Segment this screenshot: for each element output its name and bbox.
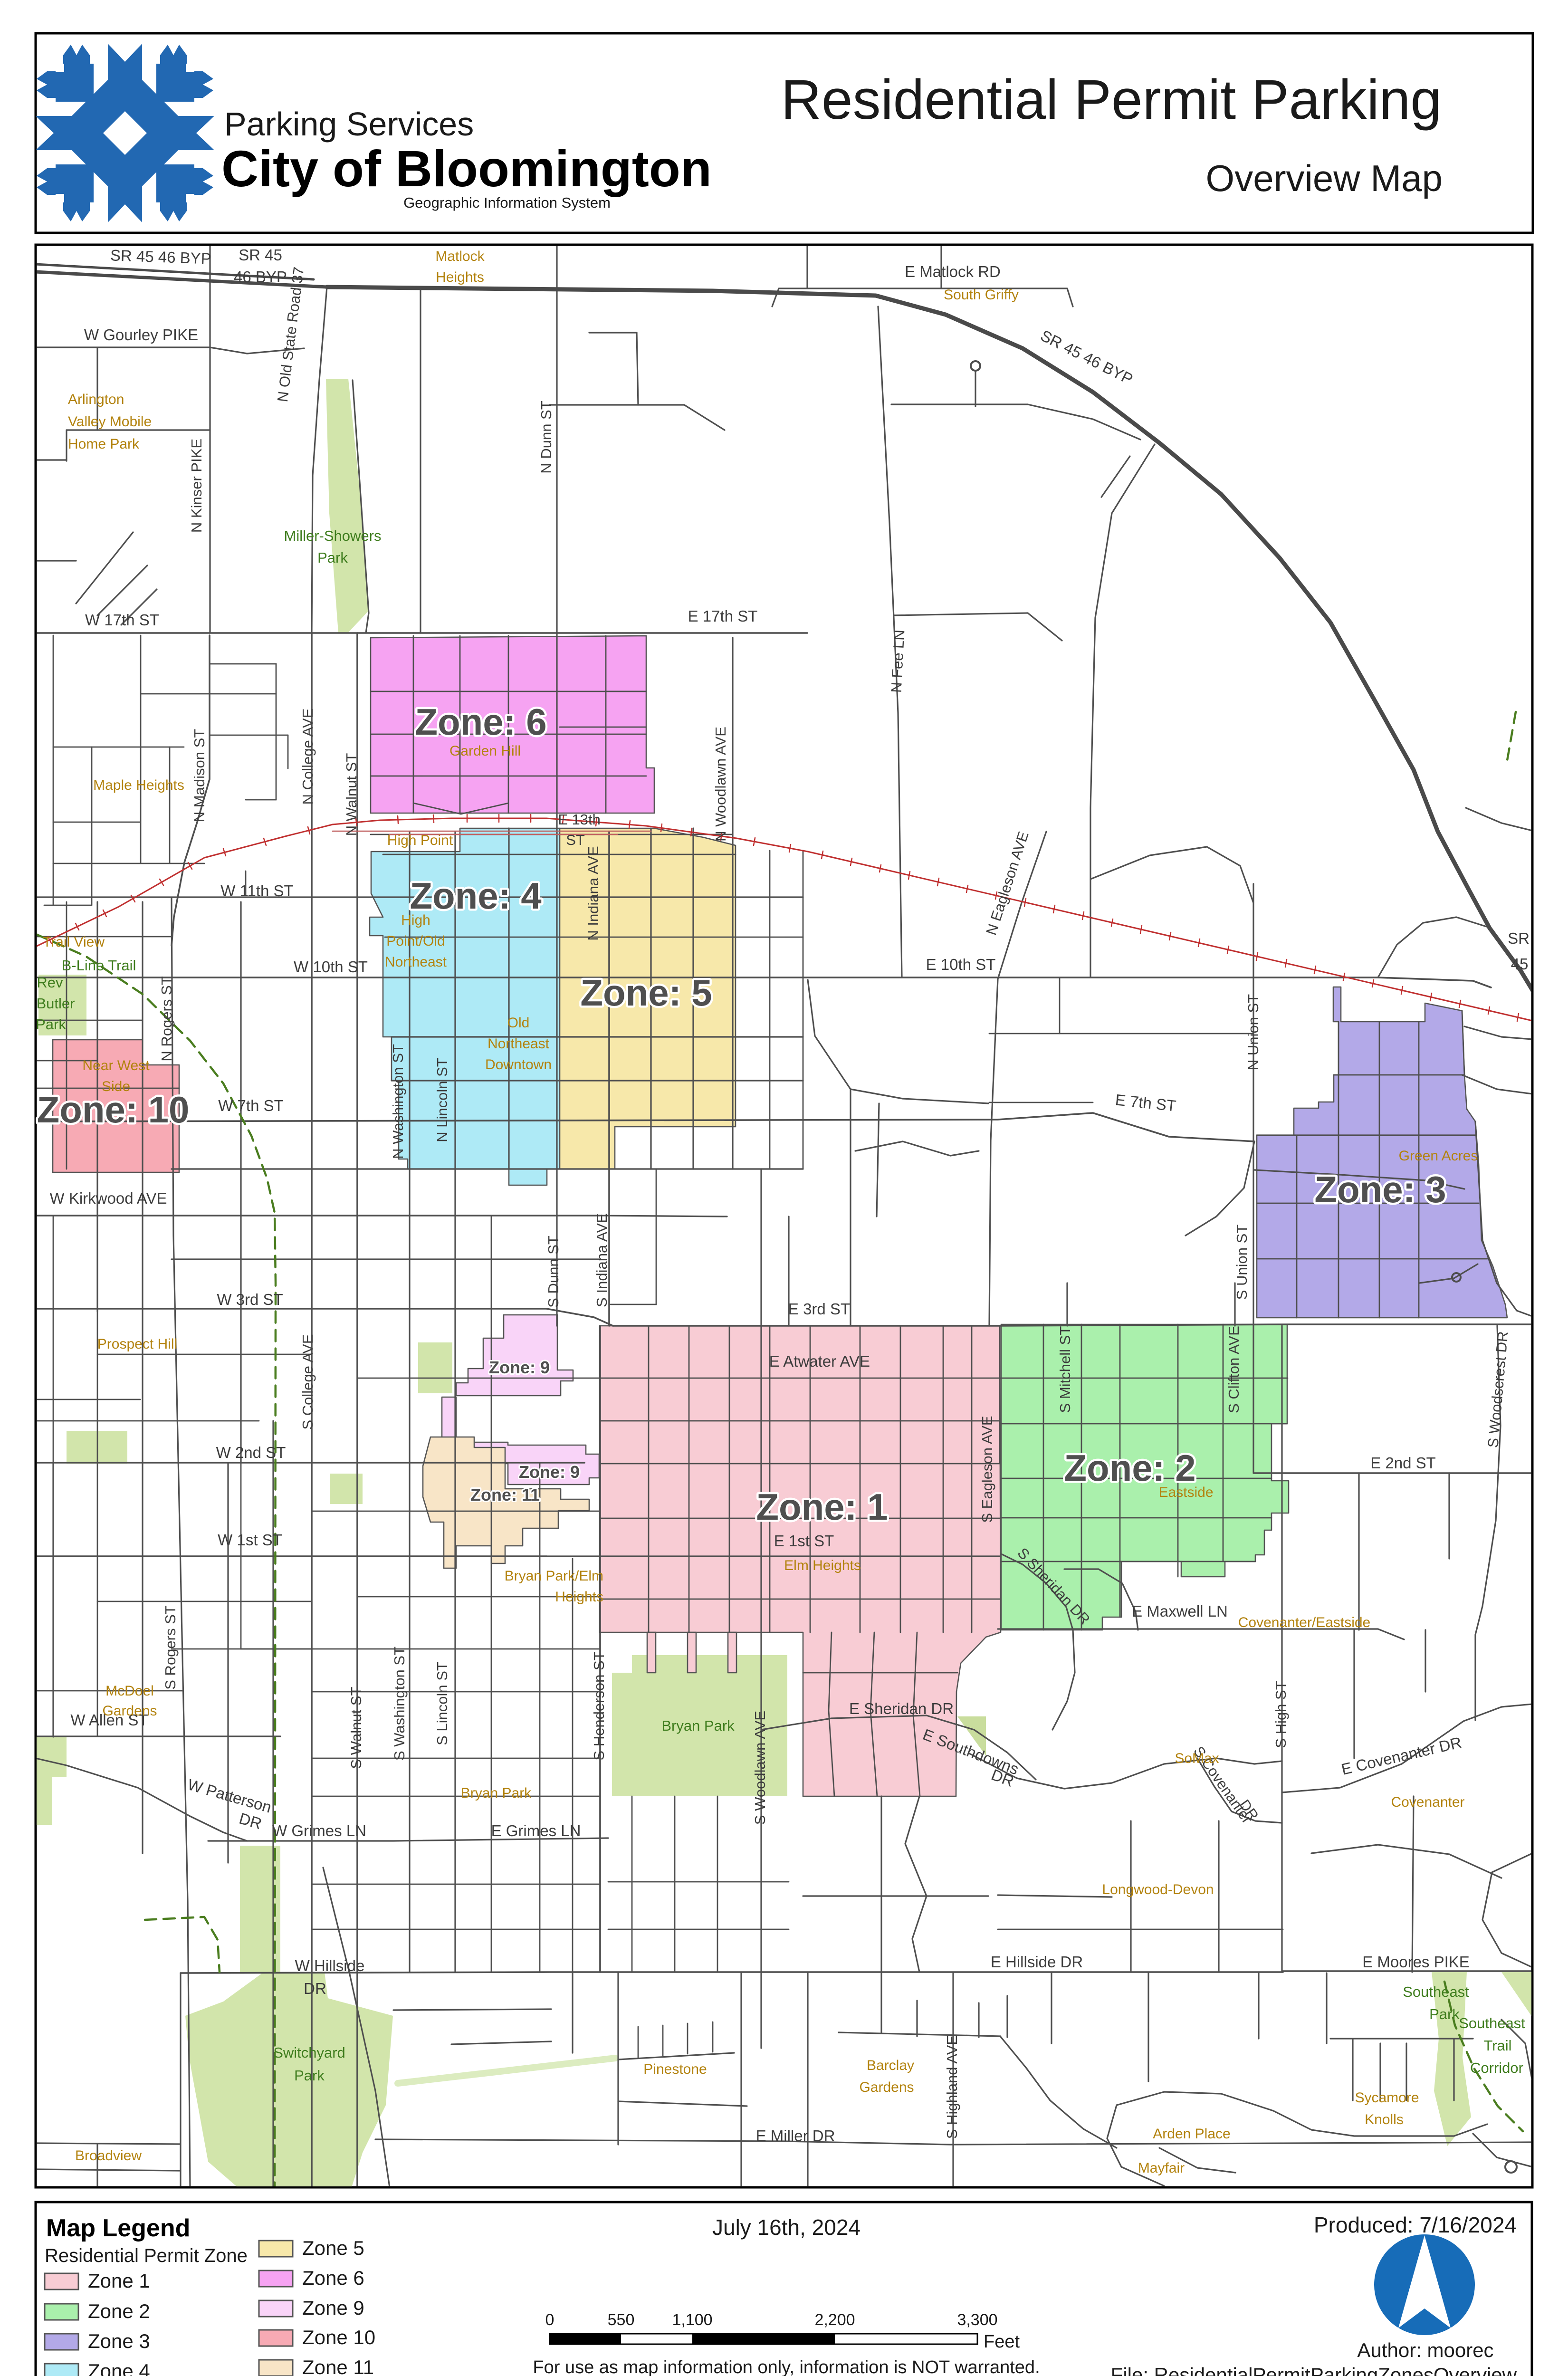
svg-text:Covenanter: Covenanter	[1391, 1794, 1464, 1810]
svg-text:Bryan Park: Bryan Park	[661, 1717, 735, 1734]
svg-text:0: 0	[545, 2311, 555, 2329]
svg-text:N Union ST: N Union ST	[1245, 994, 1262, 1070]
svg-text:S High ST: S High ST	[1272, 1681, 1289, 1748]
svg-text:W Kirkwood AVE: W Kirkwood AVE	[50, 1189, 167, 1207]
svg-text:S Mitchell ST: S Mitchell ST	[1057, 1326, 1073, 1413]
svg-text:S Indiana AVE: S Indiana AVE	[593, 1213, 610, 1307]
svg-text:E Atwater AVE: E Atwater AVE	[769, 1352, 870, 1370]
svg-text:Longwood-Devon: Longwood-Devon	[1102, 1882, 1214, 1897]
svg-text:N Lincoln ST: N Lincoln ST	[434, 1058, 450, 1142]
svg-text:S Rogers ST: S Rogers ST	[162, 1605, 179, 1690]
svg-text:Prospect Hill: Prospect Hill	[97, 1336, 177, 1352]
svg-text:N Fee LN: N Fee LN	[888, 629, 908, 693]
svg-text:Arlington: Arlington	[68, 392, 124, 407]
svg-text:Zone: 6: Zone: 6	[415, 701, 546, 743]
svg-text:ST: ST	[566, 832, 585, 848]
svg-text:E 2nd ST: E 2nd ST	[1370, 1454, 1436, 1472]
svg-text:E 13th: E 13th	[558, 811, 601, 828]
svg-text:S Dunn ST: S Dunn ST	[545, 1236, 562, 1308]
svg-text:Park: Park	[317, 549, 348, 566]
svg-text:46 BYP: 46 BYP	[234, 268, 287, 286]
svg-text:Trail: Trail	[1483, 2037, 1511, 2054]
svg-text:E Hillside DR: E Hillside DR	[991, 1953, 1083, 1971]
svg-text:N Rogers ST: N Rogers ST	[158, 976, 175, 1061]
svg-text:Downtown: Downtown	[485, 1057, 552, 1073]
svg-text:1,100: 1,100	[672, 2311, 712, 2329]
svg-text:Zone 6: Zone 6	[302, 2267, 364, 2289]
svg-text:Bryan Park: Bryan Park	[461, 1785, 532, 1801]
svg-text:Zone: 5: Zone: 5	[580, 972, 712, 1014]
svg-text:Home Park: Home Park	[68, 436, 140, 452]
svg-text:W 1st ST: W 1st ST	[218, 1531, 282, 1549]
svg-text:3,300: 3,300	[957, 2311, 997, 2329]
svg-text:N Kinser PIKE: N Kinser PIKE	[188, 439, 205, 533]
svg-text:Gardens: Gardens	[859, 2079, 914, 2095]
svg-text:Heights: Heights	[436, 269, 484, 285]
svg-text:N Indiana AVE: N Indiana AVE	[585, 846, 602, 940]
svg-text:E Grimes LN: E Grimes LN	[491, 1822, 581, 1839]
svg-text:E Moores PIKE: E Moores PIKE	[1362, 1953, 1470, 1971]
svg-text:2,200: 2,200	[814, 2311, 855, 2329]
svg-text:E 3rd ST: E 3rd ST	[788, 1300, 850, 1318]
svg-text:W 2nd ST: W 2nd ST	[216, 1444, 286, 1461]
svg-text:W 3rd ST: W 3rd ST	[217, 1291, 283, 1308]
svg-text:Zone 10: Zone 10	[302, 2326, 375, 2348]
svg-text:SR: SR	[1508, 929, 1530, 947]
svg-text:S Washington ST: S Washington ST	[391, 1647, 408, 1761]
svg-text:S Clifton AVE: S Clifton AVE	[1225, 1326, 1242, 1413]
svg-text:Zone: 4: Zone: 4	[410, 875, 541, 917]
svg-text:Zone 11: Zone 11	[302, 2356, 374, 2376]
svg-text:DR: DR	[304, 1980, 326, 1997]
svg-text:Zone: 9: Zone: 9	[519, 1462, 580, 1482]
svg-text:Green Acres: Green Acres	[1399, 1148, 1478, 1164]
svg-text:Park: Park	[1429, 2006, 1460, 2022]
svg-text:N Dunn ST: N Dunn ST	[538, 401, 555, 473]
svg-text:July 16th, 2024: July 16th, 2024	[712, 2215, 860, 2240]
svg-text:S Eagleson AVE: S Eagleson AVE	[979, 1416, 995, 1523]
svg-text:Trail View: Trail View	[43, 934, 105, 950]
svg-text:SR 45: SR 45	[239, 246, 282, 264]
svg-text:Zone: 10: Zone: 10	[37, 1089, 190, 1131]
svg-text:Feet: Feet	[984, 2332, 1020, 2352]
svg-text:W 11th ST: W 11th ST	[220, 882, 293, 900]
svg-text:S Woodlawn AVE: S Woodlawn AVE	[752, 1711, 768, 1825]
svg-text:N Madison ST: N Madison ST	[191, 729, 208, 822]
svg-text:Northeast: Northeast	[385, 954, 447, 970]
svg-text:Zone: 2: Zone: 2	[1064, 1447, 1195, 1489]
svg-text:45: 45	[1511, 955, 1529, 973]
svg-text:Zone 5: Zone 5	[302, 2237, 364, 2259]
svg-text:W 10th ST: W 10th ST	[294, 958, 368, 976]
svg-text:Zone 9: Zone 9	[302, 2297, 364, 2319]
svg-text:S College AVE: S College AVE	[299, 1334, 316, 1429]
svg-text:W Grimes LN: W Grimes LN	[272, 1822, 366, 1839]
svg-text:Zone 2: Zone 2	[88, 2300, 150, 2322]
svg-text:N Washington ST: N Washington ST	[390, 1044, 406, 1159]
svg-text:Rev: Rev	[37, 974, 63, 991]
svg-text:Miller-Showers: Miller-Showers	[284, 527, 382, 544]
svg-text:E Matlock RD: E Matlock RD	[905, 263, 1001, 280]
svg-text:Park: Park	[36, 1016, 66, 1033]
svg-text:Heights: Heights	[555, 1589, 603, 1605]
svg-text:E 10th ST: E 10th ST	[926, 956, 996, 973]
svg-text:Overview Map: Overview Map	[1206, 157, 1443, 199]
svg-text:Parking Services: Parking Services	[224, 105, 474, 143]
svg-text:E 1st ST: E 1st ST	[774, 1532, 834, 1550]
svg-text:Point/Old: Point/Old	[386, 933, 445, 949]
svg-text:Garden Hill: Garden Hill	[449, 743, 521, 759]
svg-text:Southeast: Southeast	[1403, 1983, 1469, 2000]
svg-text:W 17th ST: W 17th ST	[85, 611, 159, 629]
svg-text:Produced: 7/16/2024: Produced: 7/16/2024	[1314, 2213, 1517, 2237]
svg-text:Knolls: Knolls	[1365, 2112, 1404, 2127]
svg-text:N Walnut ST: N Walnut ST	[343, 753, 360, 836]
svg-text:Northeast: Northeast	[488, 1036, 550, 1052]
svg-text:B-Line Trail: B-Line Trail	[62, 957, 136, 974]
svg-text:SR 45 46 BYP: SR 45 46 BYP	[110, 246, 211, 267]
svg-text:Corridor: Corridor	[1470, 2060, 1523, 2076]
svg-text:Zone: 1: Zone: 1	[756, 1486, 888, 1528]
svg-text:SoMax: SoMax	[1175, 1751, 1219, 1766]
svg-text:Zone: 9: Zone: 9	[489, 1358, 550, 1377]
svg-text:Residential Permit Parking: Residential Permit Parking	[781, 68, 1442, 131]
svg-text:E Maxwell LN: E Maxwell LN	[1132, 1602, 1228, 1620]
svg-text:Zone: 3: Zone: 3	[1314, 1169, 1446, 1210]
svg-text:Butler: Butler	[37, 995, 75, 1012]
svg-text:S Henderson ST: S Henderson ST	[591, 1651, 607, 1760]
svg-text:S Lincoln ST: S Lincoln ST	[434, 1662, 450, 1745]
svg-text:Park: Park	[294, 2067, 325, 2084]
svg-text:Zone 1: Zone 1	[88, 2270, 150, 2292]
svg-text:S Highland AVE: S Highland AVE	[944, 2035, 960, 2139]
svg-text:Sycamore: Sycamore	[1355, 2090, 1419, 2106]
svg-text:Valley Mobile: Valley Mobile	[68, 414, 152, 430]
svg-text:Matlock: Matlock	[435, 249, 485, 264]
svg-text:Broadview: Broadview	[75, 2148, 142, 2164]
svg-text:South Griffy: South Griffy	[944, 287, 1019, 303]
svg-text:Arden Place: Arden Place	[1153, 2126, 1230, 2142]
svg-text:W Hillside: W Hillside	[295, 1957, 365, 1974]
svg-text:550: 550	[608, 2311, 635, 2329]
svg-text:S Walnut ST: S Walnut ST	[348, 1687, 364, 1769]
svg-text:Mayfair: Mayfair	[1138, 2160, 1185, 2176]
svg-text:E 17th ST: E 17th ST	[688, 607, 758, 625]
svg-text:Bryan Park/Elm: Bryan Park/Elm	[505, 1568, 603, 1584]
svg-text:Map Legend: Map Legend	[46, 2214, 190, 2242]
svg-text:Zone: 11: Zone: 11	[470, 1485, 540, 1504]
svg-text:Switchyard: Switchyard	[273, 2044, 345, 2061]
svg-text:E Miller DR: E Miller DR	[756, 2127, 835, 2145]
svg-text:Residential Permit Zone: Residential Permit Zone	[45, 2245, 248, 2266]
svg-text:W 7th ST: W 7th ST	[218, 1097, 284, 1114]
svg-text:File: ResidentialPermitParking: File: ResidentialPermitParkingZonesOverv…	[1111, 2364, 1517, 2376]
svg-text:Near West: Near West	[82, 1058, 150, 1073]
svg-text:For use as map information onl: For use as map information only, informa…	[533, 2357, 1040, 2376]
svg-text:Author: moorec: Author: moorec	[1357, 2339, 1493, 2361]
svg-text:McDoel: McDoel	[105, 1683, 154, 1699]
svg-text:E Sheridan DR: E Sheridan DR	[849, 1700, 954, 1717]
svg-text:High Point: High Point	[387, 833, 453, 848]
svg-text:Southeast: Southeast	[1459, 2015, 1525, 2031]
svg-text:W Gourley PIKE: W Gourley PIKE	[84, 326, 198, 344]
svg-text:Geographic Information System: Geographic Information System	[403, 194, 611, 211]
svg-text:Zone 4: Zone 4	[88, 2360, 150, 2376]
svg-text:Covenanter/Eastside: Covenanter/Eastside	[1238, 1615, 1371, 1630]
svg-text:Elm Heights: Elm Heights	[784, 1558, 861, 1573]
svg-text:N Woodlawn AVE: N Woodlawn AVE	[712, 727, 729, 842]
svg-text:Zone 3: Zone 3	[88, 2330, 150, 2352]
svg-text:Maple Heights: Maple Heights	[93, 777, 184, 793]
svg-text:Barclay: Barclay	[867, 2058, 914, 2073]
svg-text:Pinestone: Pinestone	[643, 2061, 707, 2077]
svg-text:City of Bloomington: City of Bloomington	[221, 140, 712, 197]
svg-text:S Union ST: S Union ST	[1233, 1225, 1250, 1300]
svg-text:N College AVE: N College AVE	[299, 709, 316, 805]
svg-text:Old: Old	[507, 1015, 530, 1031]
svg-text:Gardens: Gardens	[102, 1703, 157, 1719]
